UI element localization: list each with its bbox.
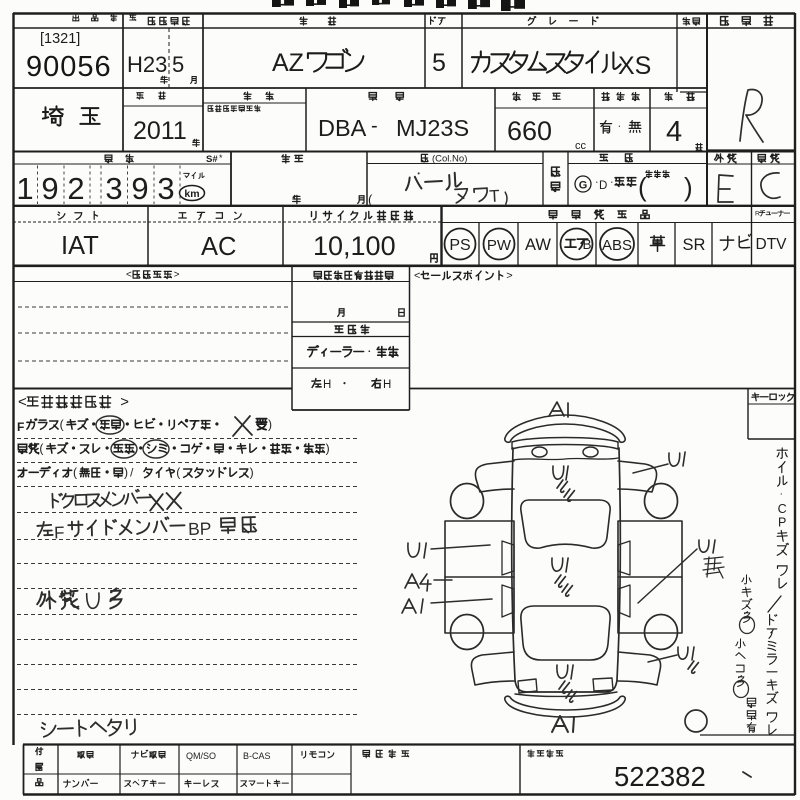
svg-text:DTV: DTV bbox=[756, 236, 788, 253]
svg-text:>: > bbox=[174, 270, 180, 281]
svg-text:F: F bbox=[17, 420, 24, 434]
svg-text:): ) bbox=[326, 441, 330, 455]
svg-text:G: G bbox=[579, 180, 588, 192]
svg-text:660: 660 bbox=[507, 116, 552, 146]
svg-text:(: ( bbox=[73, 465, 77, 479]
svg-text:AW: AW bbox=[525, 236, 551, 254]
svg-text:>: > bbox=[506, 270, 512, 282]
svg-text:(: ( bbox=[60, 417, 64, 431]
svg-text:B-CAS: B-CAS bbox=[243, 751, 271, 761]
svg-text:AZ: AZ bbox=[272, 49, 304, 77]
svg-text:SR: SR bbox=[683, 236, 706, 254]
svg-text:-: - bbox=[371, 115, 378, 137]
svg-text:BP: BP bbox=[188, 518, 212, 539]
svg-text:XS: XS bbox=[618, 52, 651, 80]
svg-text:cc: cc bbox=[575, 140, 587, 152]
svg-text:(Col.No): (Col.No) bbox=[432, 154, 467, 165]
svg-text:QM/SO: QM/SO bbox=[186, 751, 216, 761]
svg-text:PW: PW bbox=[487, 237, 512, 254]
svg-text:5: 5 bbox=[172, 52, 184, 77]
svg-text:H: H bbox=[383, 379, 391, 391]
svg-text:B: B bbox=[582, 237, 591, 252]
svg-text:IAT: IAT bbox=[61, 232, 99, 260]
svg-text:>: > bbox=[120, 395, 129, 411]
svg-text:km: km bbox=[184, 188, 199, 200]
svg-text:(: ( bbox=[39, 441, 43, 455]
svg-text:(: ( bbox=[176, 465, 180, 479]
svg-text:3: 3 bbox=[105, 171, 122, 206]
svg-text:90056: 90056 bbox=[26, 51, 112, 83]
svg-text:): ) bbox=[124, 465, 128, 479]
svg-text:C: C bbox=[778, 502, 787, 516]
svg-text:<: < bbox=[18, 395, 27, 411]
svg-text:*: * bbox=[219, 153, 223, 163]
svg-text:AC: AC bbox=[201, 233, 236, 261]
svg-text:3: 3 bbox=[157, 171, 174, 206]
svg-text:9: 9 bbox=[131, 171, 148, 206]
svg-text:(: ( bbox=[368, 192, 373, 207]
svg-text:PS: PS bbox=[449, 237, 470, 254]
svg-text:9: 9 bbox=[41, 171, 58, 206]
svg-text:): ) bbox=[684, 172, 693, 202]
svg-text:<: < bbox=[414, 270, 420, 282]
svg-text:2011: 2011 bbox=[133, 117, 187, 145]
svg-text:4: 4 bbox=[666, 116, 682, 148]
svg-text:2: 2 bbox=[67, 171, 84, 206]
svg-text:): ) bbox=[250, 465, 254, 479]
svg-text:H: H bbox=[323, 379, 331, 391]
svg-text:DBA: DBA bbox=[318, 115, 367, 141]
svg-text:): ) bbox=[268, 417, 272, 431]
svg-text:1: 1 bbox=[16, 171, 33, 206]
svg-text:D: D bbox=[599, 180, 607, 192]
svg-text:S#: S# bbox=[206, 154, 218, 165]
svg-text:T: T bbox=[489, 186, 500, 206]
svg-text:/: / bbox=[130, 466, 134, 479]
svg-text:H23: H23 bbox=[127, 52, 167, 77]
svg-text:522382: 522382 bbox=[614, 761, 706, 792]
svg-text:5: 5 bbox=[432, 49, 446, 77]
svg-text:<: < bbox=[126, 270, 132, 281]
svg-text:[1321]: [1321] bbox=[40, 31, 80, 47]
svg-text:10,100: 10,100 bbox=[313, 231, 396, 261]
svg-text:ABS: ABS bbox=[602, 237, 632, 254]
svg-text:MJ23S: MJ23S bbox=[396, 115, 469, 141]
svg-text:R: R bbox=[755, 211, 760, 218]
svg-text:P: P bbox=[778, 516, 786, 530]
